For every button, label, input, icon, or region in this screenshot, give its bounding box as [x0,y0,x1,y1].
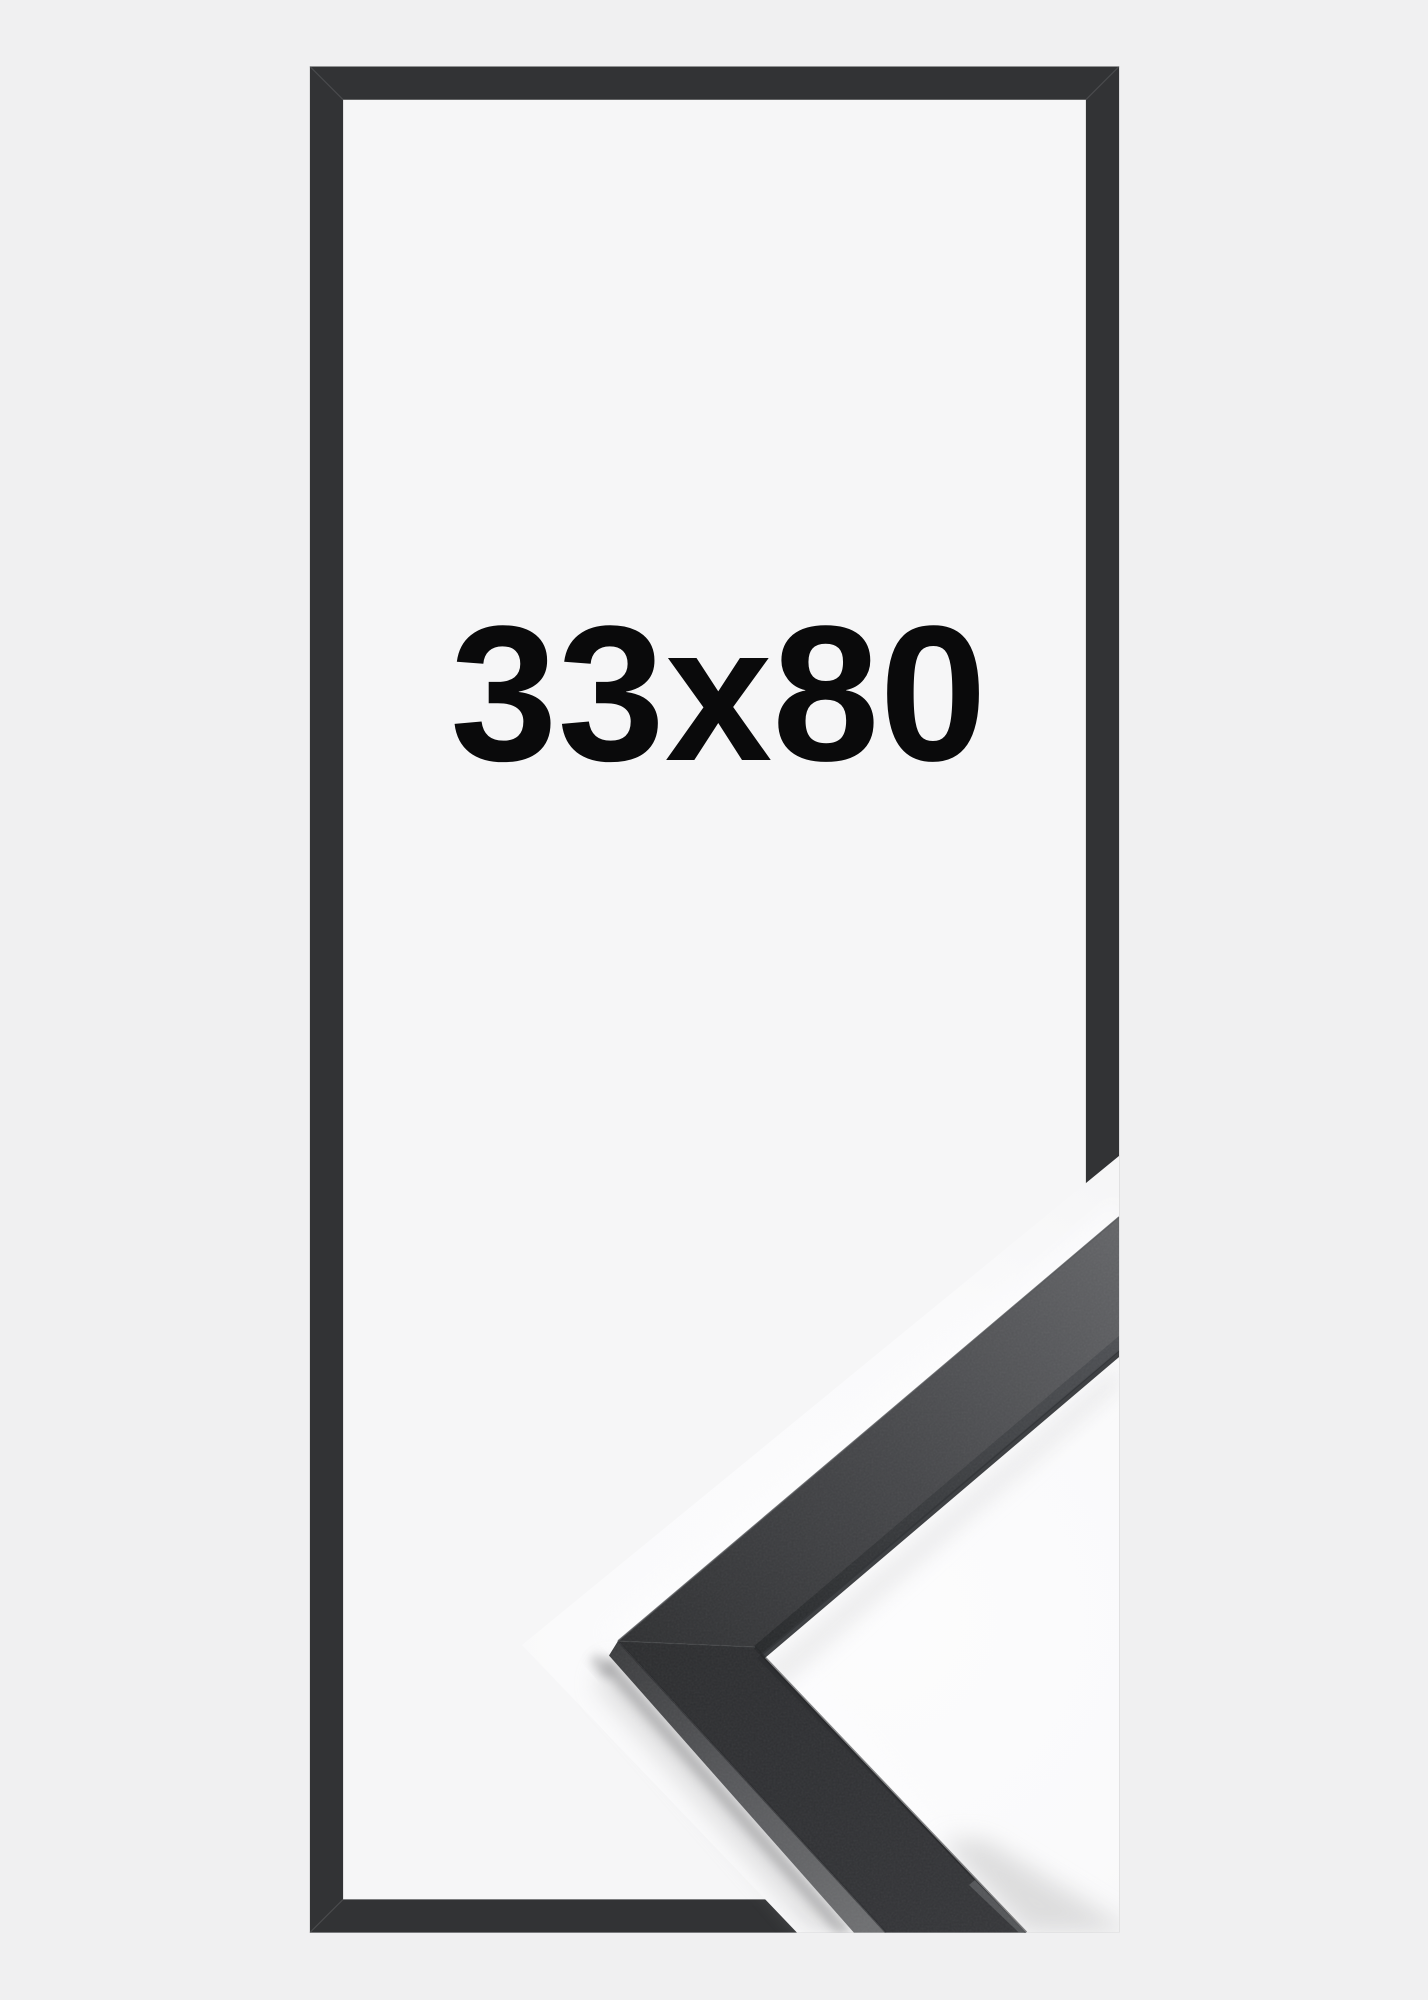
svg-text:33x80: 33x80 [450,585,987,801]
